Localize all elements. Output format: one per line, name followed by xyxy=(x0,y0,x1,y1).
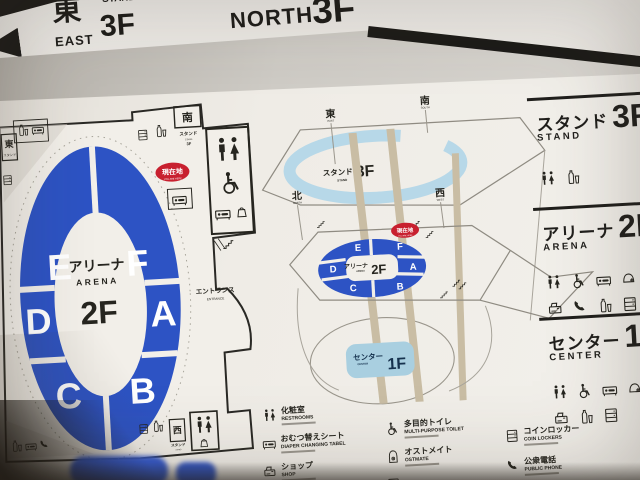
legend-entry-shop: ショップ SHOP xyxy=(262,462,316,480)
mini-section-e: E xyxy=(355,243,362,254)
center-legend-floor: 1F xyxy=(623,316,640,355)
sign-east-floor: 3F xyxy=(99,8,136,44)
mini-section-f: F xyxy=(397,241,404,252)
center-en: CENTER xyxy=(357,361,368,366)
arena-floor: 2F xyxy=(80,293,119,331)
center-jp: センター xyxy=(353,351,384,363)
photo-of-arena-sign: E F D A C B アリーナ ARENA 2F 東 スタンド xyxy=(0,0,640,480)
sign-north-en: NORTH xyxy=(229,2,314,34)
stand-jp: スタンド xyxy=(322,166,353,178)
locker-icon xyxy=(602,407,620,425)
sign-east-kanji: 東 xyxy=(51,0,83,30)
west-stand-jp: スタンド xyxy=(171,442,186,448)
mini-section-a: A xyxy=(409,262,417,273)
east-kanji: 東 xyxy=(4,138,14,149)
center-floor: 1F xyxy=(387,355,407,373)
information-panel: E F D A C B アリーナ ARENA 2F 東 スタンド xyxy=(0,55,640,480)
arena-jp: アリーナ xyxy=(68,256,125,275)
sign-east-stand: STAND xyxy=(102,0,136,5)
mini-section-d: D xyxy=(329,264,337,275)
locker-icon xyxy=(621,295,639,313)
south-floor: 3F xyxy=(186,141,191,146)
dir-south: 南 xyxy=(419,94,430,108)
vending-icon xyxy=(577,408,595,426)
diaper-icon xyxy=(261,436,277,452)
west-kanji: 西 xyxy=(173,425,183,435)
west-stand-en: STAND xyxy=(175,448,182,451)
left-arrow-icon xyxy=(0,28,22,62)
section-d: D xyxy=(24,300,52,342)
restroom-icon xyxy=(539,170,557,188)
stand-en: STAND xyxy=(337,178,348,183)
vending-icon xyxy=(564,168,582,186)
mini-you-are-here-badge: 現在地 YOU ARE HERE xyxy=(391,222,420,239)
sign-north-floor: 3F xyxy=(310,0,356,33)
floor-map: E F D A C B アリーナ ARENA 2F 東 スタンド xyxy=(0,102,267,466)
restroom-icon xyxy=(545,274,563,292)
stairs-icon xyxy=(223,241,234,249)
center-1f-block: センター CENTER 1F xyxy=(345,341,415,379)
ostomate-icon xyxy=(385,449,401,465)
section-f: F xyxy=(125,242,149,284)
dir-north-en: NORTH xyxy=(293,200,303,205)
section-b: B xyxy=(128,369,156,411)
diaper-icon xyxy=(595,271,613,289)
legend-entry-cut-off xyxy=(386,477,406,480)
wheelchair-icon xyxy=(570,272,588,290)
restroom-icon xyxy=(551,383,569,401)
east-stand-label: スタンド xyxy=(3,152,16,158)
legend-entry-ostomate: オストメイト OSTMATE xyxy=(385,446,453,470)
sign-east-en: EAST xyxy=(55,32,95,50)
overhead-directional-sign: 東 EAST STAND 3F NORTH 3F xyxy=(0,0,640,70)
stand-legend-floor: 3F xyxy=(611,96,640,135)
stand-3f-label: スタンド 3F STAND xyxy=(322,163,375,183)
dir-east-en: EAST xyxy=(327,118,334,122)
mini-section-c: C xyxy=(349,283,357,294)
mini-arena-floor: 2F xyxy=(371,261,387,277)
stand-legend-icons xyxy=(539,168,590,188)
wheelchair-icon xyxy=(576,382,594,400)
locker-icon xyxy=(504,428,520,444)
first-aid-icon xyxy=(620,269,638,287)
phone-icon xyxy=(505,458,521,474)
vending-icon xyxy=(596,297,614,315)
section-a: A xyxy=(149,292,177,334)
section-c: C xyxy=(55,375,83,417)
shop-icon xyxy=(546,300,564,318)
restroom-icon xyxy=(262,408,278,424)
wheelchair-icon xyxy=(385,421,401,437)
shop-icon xyxy=(262,464,278,480)
dir-east: 東 xyxy=(325,107,336,121)
mini-section-b: B xyxy=(396,281,404,292)
diaper-icon xyxy=(601,381,619,399)
blurred-sign-below xyxy=(176,462,216,480)
mini-arena-en: ARENA xyxy=(356,270,365,273)
first-aid-icon xyxy=(626,379,640,397)
phone-icon xyxy=(571,298,589,316)
blurred-sign-below xyxy=(70,456,168,480)
arena-legend-floor: 2F xyxy=(617,206,640,245)
dir-west-en: WEST xyxy=(437,197,445,201)
legend-entry-restrooms: 化粧室 RESTROOMS xyxy=(262,405,334,429)
south-kanji: 南 xyxy=(182,110,194,125)
dir-south-en: SOUTH xyxy=(421,105,430,110)
dir-north: 北 xyxy=(292,189,303,203)
